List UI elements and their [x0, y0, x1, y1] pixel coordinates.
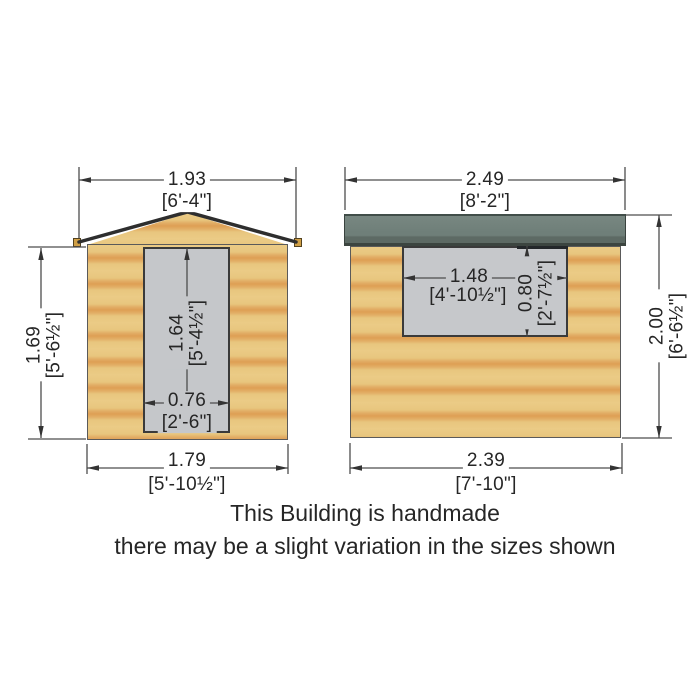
window-height-dim: 0.80 [2'-7½"] [515, 257, 557, 330]
side-wall-height-metric: 2.00 [647, 293, 667, 360]
window-height-imperial: [2'-7½"] [536, 260, 556, 327]
front-wall-height-imperial: [5'-6½"] [44, 312, 64, 379]
door-height-metric: 1.64 [167, 300, 187, 367]
side-wall-height-dim: 2.00 [6'-6½"] [646, 290, 688, 363]
front-wall-height-dim: 1.69 [5'-6½"] [23, 309, 65, 382]
door-width-metric: 0.76 [164, 391, 210, 411]
side-base-width-imperial: [7'-10"] [451, 475, 520, 495]
gable-roof-edge [79, 212, 296, 242]
door-height-imperial: [5'-4½"] [187, 300, 207, 367]
shed-dimension-drawing: 1.93 [6'-4"] 1.69 [5'-6½"] 1.64 [5'-4½"]… [0, 0, 700, 700]
window-width-imperial: [4'-10½"] [425, 286, 511, 306]
front-roof-width-imperial: [6'-4"] [158, 192, 217, 212]
door-height-dim: 1.64 [5'-4½"] [166, 297, 208, 370]
window-height-metric: 0.80 [516, 260, 536, 327]
door-width-imperial: [2'-6"] [158, 413, 217, 433]
handmade-note: This Building is handmade there may be a… [30, 497, 700, 563]
side-base-width-metric: 2.39 [463, 451, 509, 471]
side-wall-height-imperial: [6'-6½"] [667, 293, 687, 360]
front-wall-height-metric: 1.69 [24, 312, 44, 379]
window-width-metric: 1.48 [446, 267, 492, 287]
handmade-note-line2: there may be a slight variation in the s… [30, 530, 700, 563]
dimension-linework [0, 0, 700, 700]
handmade-note-line1: This Building is handmade [30, 497, 700, 530]
front-base-width-metric: 1.79 [164, 451, 210, 471]
front-roof-width-metric: 1.93 [164, 170, 210, 190]
front-base-width-imperial: [5'-10½"] [144, 475, 230, 495]
side-roof-width-imperial: [8'-2"] [456, 192, 515, 212]
side-roof-width-metric: 2.49 [462, 170, 508, 190]
